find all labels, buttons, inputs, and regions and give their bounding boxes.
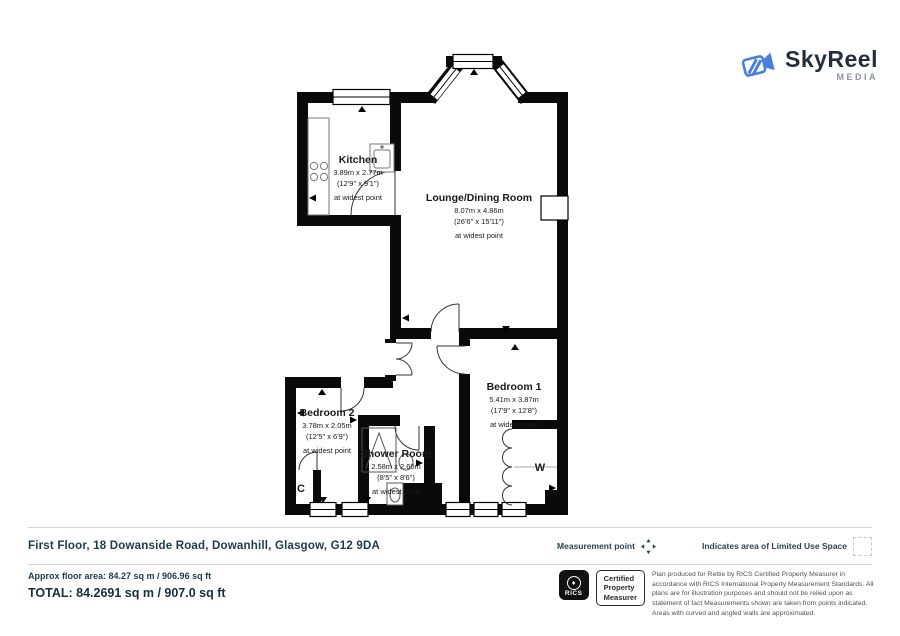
plan-disclaimer: Plan produced for Rettie by RICS Certifi… — [652, 570, 880, 618]
cert-line-1: Certified — [604, 574, 637, 583]
measurement-point-legend: Measurement point — [557, 539, 656, 554]
limited-use-legend: Indicates area of Limited Use Space — [702, 537, 872, 556]
property-address: First Floor, 18 Dowanside Road, Dowanhil… — [28, 540, 380, 552]
svg-text:(12'5" x 6'9"): (12'5" x 6'9") — [306, 432, 348, 441]
cert-line-3: Measurer — [604, 593, 637, 602]
rics-logo: ♦ RICS — [559, 570, 589, 600]
footer-divider-bottom — [28, 564, 872, 565]
entrance-double-doors — [396, 343, 412, 375]
svg-text:Shower Room: Shower Room — [361, 448, 432, 460]
footer-area-row: Approx floor area: 84.27 sq m / 906.96 s… — [28, 570, 880, 618]
bedroom1-label: Bedroom 1 5.41m x 3.87m (17'9" x 12'8") … — [487, 381, 542, 429]
svg-text:(12'9" x 9'1"): (12'9" x 9'1") — [337, 179, 379, 188]
page: SkyReel MEDIA — [0, 0, 900, 636]
lounge-door — [431, 304, 459, 332]
measurement-point-icon — [641, 539, 656, 554]
chimney-recess — [541, 196, 568, 220]
room-labels: Kitchen 3.89m x 2.77m (12'9" x 9'1") at … — [297, 154, 546, 496]
cupboard-label: C — [297, 483, 305, 495]
svg-text:at widest point: at widest point — [303, 446, 352, 455]
svg-text:at widest point: at widest point — [455, 231, 504, 240]
cert-line-2: Property — [604, 583, 637, 592]
kitchen-label: Kitchen 3.89m x 2.77m (12'9" x 9'1") at … — [333, 154, 383, 202]
bedroom1-windows — [446, 503, 526, 517]
kitchen-counter — [308, 118, 329, 215]
floor-areas: Approx floor area: 84.27 sq m / 906.96 s… — [28, 570, 226, 602]
svg-text:(17'9" x 12'8"): (17'9" x 12'8") — [491, 406, 538, 415]
svg-text:at widest point: at widest point — [372, 487, 421, 496]
approx-floor-area: Approx floor area: 84.27 sq m / 906.96 s… — [28, 570, 226, 584]
floor-plan: Kitchen 3.89m x 2.77m (12'9" x 9'1") at … — [0, 0, 900, 527]
bedroom2-window — [310, 503, 336, 517]
certified-property-measurer-badge: Certified Property Measurer — [596, 570, 645, 606]
svg-text:Lounge/Dining Room: Lounge/Dining Room — [426, 192, 532, 204]
shower-door — [395, 426, 419, 450]
lounge-label: Lounge/Dining Room 8.07m x 4.86m (26'6" … — [426, 192, 532, 240]
rics-emblem-icon: ♦ — [567, 576, 581, 590]
measurement-point-label: Measurement point — [557, 541, 635, 551]
wardrobe-label: W — [535, 462, 546, 474]
svg-text:Bedroom 2: Bedroom 2 — [300, 407, 355, 419]
svg-text:3.89m x 2.77m: 3.89m x 2.77m — [333, 168, 383, 177]
svg-text:8.07m x 4.86m: 8.07m x 4.86m — [454, 206, 504, 215]
svg-text:3.78m x 2.05m: 3.78m x 2.05m — [302, 421, 352, 430]
svg-text:Kitchen: Kitchen — [339, 154, 378, 166]
svg-text:(26'6" x 15'11"): (26'6" x 15'11") — [454, 217, 504, 226]
svg-text:2.58m x 2.60m: 2.58m x 2.60m — [371, 462, 421, 471]
rics-logo-text: RICS — [565, 590, 583, 597]
bedroom1-door — [437, 346, 465, 374]
shower-window — [342, 503, 368, 517]
svg-text:at widest point: at widest point — [490, 420, 539, 429]
footer-address-row: First Floor, 18 Dowanside Road, Dowanhil… — [28, 528, 872, 564]
svg-text:5.41m x 3.87m: 5.41m x 3.87m — [489, 395, 539, 404]
bedroom2-label: Bedroom 2 3.78m x 2.05m (12'5" x 6'9") a… — [300, 407, 355, 455]
svg-text:Bedroom 1: Bedroom 1 — [487, 381, 542, 393]
plan-legend: Measurement point Indicates area of Limi… — [557, 537, 872, 556]
total-floor-area: TOTAL: 84.2691 sq m / 907.0 sq ft — [28, 584, 226, 603]
limited-use-label: Indicates area of Limited Use Space — [702, 541, 847, 551]
svg-text:at widest point: at widest point — [334, 193, 383, 202]
kitchen-window — [333, 90, 390, 105]
rics-certification: ♦ RICS Certified Property Measurer Plan … — [559, 570, 880, 618]
svg-text:(8'5" x 8'6"): (8'5" x 8'6") — [377, 473, 415, 482]
limited-use-swatch — [853, 537, 872, 556]
